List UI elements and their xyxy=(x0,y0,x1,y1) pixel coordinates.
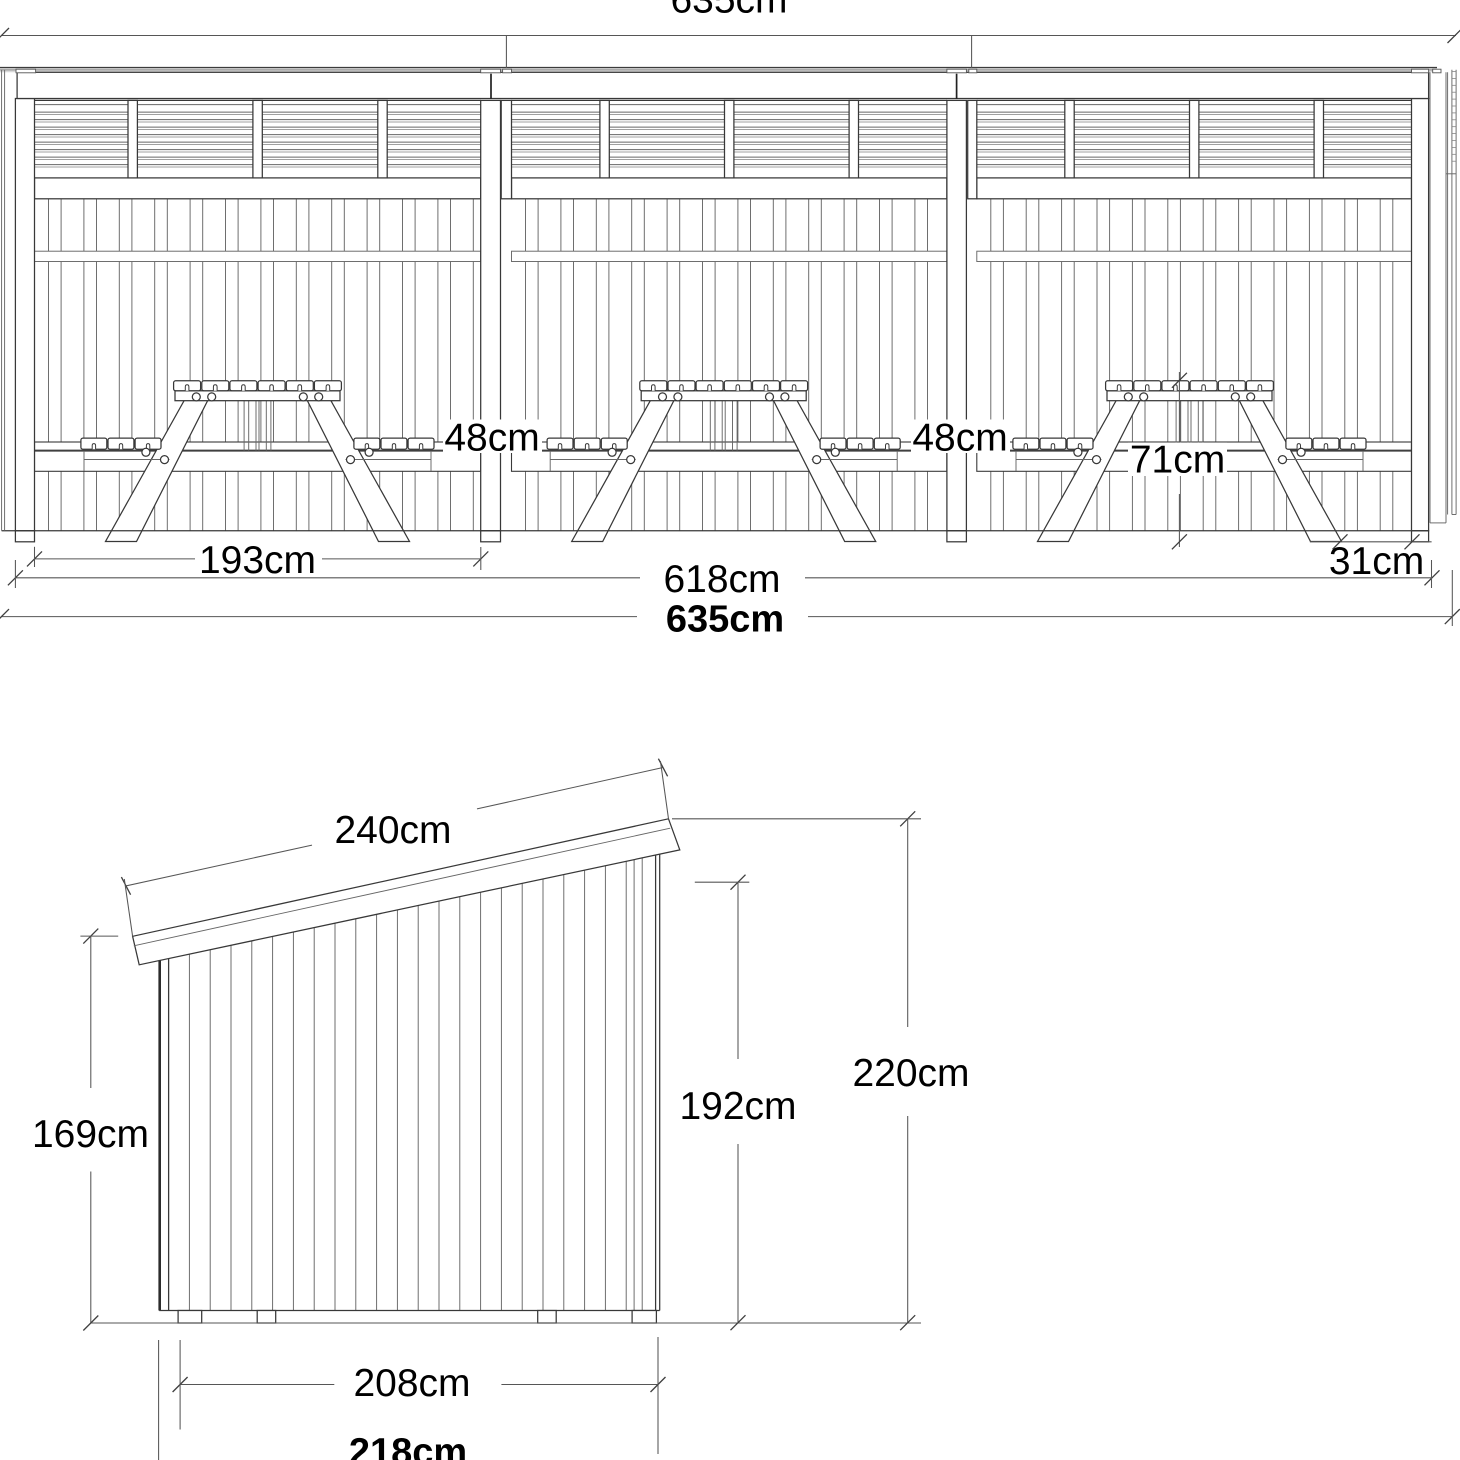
svg-text:220cm: 220cm xyxy=(852,1052,969,1095)
svg-text:635cm: 635cm xyxy=(666,599,784,641)
svg-text:635cm: 635cm xyxy=(670,0,787,22)
svg-text:218cm: 218cm xyxy=(349,1432,467,1460)
svg-text:618cm: 618cm xyxy=(663,558,780,601)
svg-text:48cm: 48cm xyxy=(912,416,1007,459)
svg-text:71cm: 71cm xyxy=(1130,439,1225,482)
svg-text:48cm: 48cm xyxy=(444,416,539,459)
svg-text:169cm: 169cm xyxy=(32,1113,149,1156)
svg-text:208cm: 208cm xyxy=(353,1362,470,1405)
svg-text:31cm: 31cm xyxy=(1329,540,1424,583)
svg-text:193cm: 193cm xyxy=(199,539,316,582)
svg-text:240cm: 240cm xyxy=(334,809,451,852)
svg-text:192cm: 192cm xyxy=(679,1085,796,1128)
